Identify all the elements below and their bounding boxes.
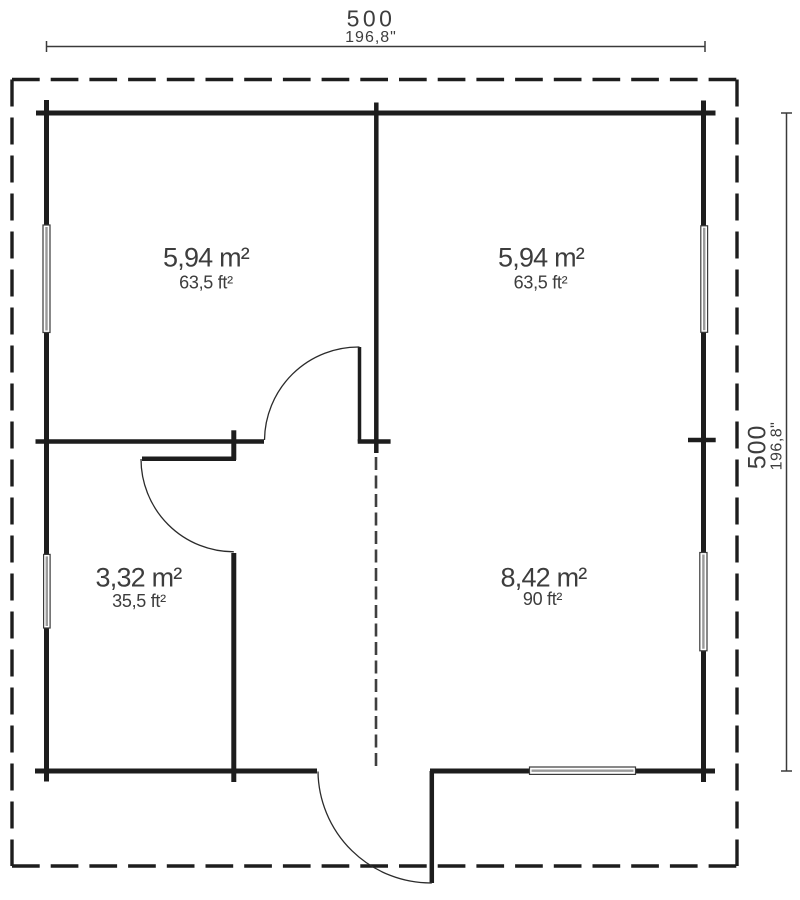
svg-text:5,94 m²: 5,94 m²: [163, 243, 250, 273]
svg-text:3,32 m²: 3,32 m²: [96, 563, 183, 593]
svg-text:5,94 m²: 5,94 m²: [498, 243, 585, 273]
svg-text:90 ft²: 90 ft²: [523, 589, 563, 609]
svg-text:63,5 ft²: 63,5 ft²: [179, 273, 233, 293]
svg-text:35,5 ft²: 35,5 ft²: [112, 591, 166, 611]
svg-text:196,8": 196,8": [345, 29, 397, 46]
svg-text:500: 500: [744, 425, 772, 470]
svg-text:196,8": 196,8": [769, 422, 786, 471]
svg-text:8,42 m²: 8,42 m²: [501, 563, 588, 593]
svg-text:63,5 ft²: 63,5 ft²: [514, 273, 568, 293]
svg-text:500: 500: [347, 6, 396, 32]
